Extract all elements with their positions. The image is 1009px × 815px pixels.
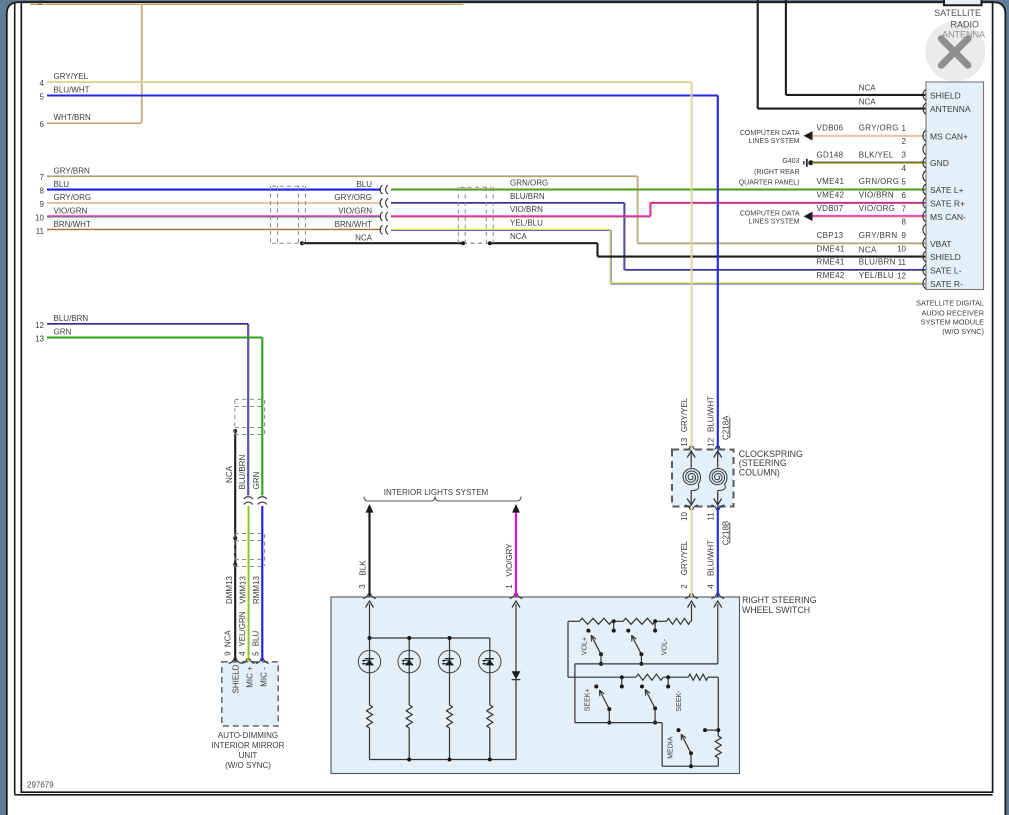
svg-text:BLU/BRN: BLU/BRN: [510, 192, 545, 201]
svg-text:3: 3: [358, 584, 367, 589]
svg-text:VIO/BRN: VIO/BRN: [510, 205, 543, 214]
svg-text:UNIT: UNIT: [239, 751, 258, 760]
svg-text:7: 7: [40, 173, 45, 182]
svg-text:9: 9: [902, 231, 907, 240]
svg-text:BLU/WHT: BLU/WHT: [707, 540, 716, 576]
svg-text:3: 3: [902, 151, 907, 160]
svg-text:2: 2: [902, 137, 907, 146]
svg-text:LINES SYSTEM: LINES SYSTEM: [749, 138, 800, 145]
svg-text:NCA: NCA: [859, 245, 877, 254]
svg-text:GRY/YEL: GRY/YEL: [54, 72, 89, 81]
svg-text:YEL/BLU: YEL/BLU: [859, 271, 894, 280]
svg-text:11: 11: [898, 258, 907, 267]
svg-text:GRY/BRN: GRY/BRN: [54, 166, 91, 175]
svg-text:GRN/ORG: GRN/ORG: [859, 177, 900, 186]
svg-text:MS CAN-: MS CAN-: [930, 212, 966, 222]
svg-text:NCA: NCA: [355, 233, 373, 242]
svg-text:SATE R+: SATE R+: [930, 199, 965, 209]
svg-text:NCA: NCA: [225, 465, 234, 483]
svg-text:8: 8: [40, 187, 45, 196]
svg-text:BLU/BRN: BLU/BRN: [54, 314, 89, 323]
svg-text:SATE L-: SATE L-: [930, 266, 962, 276]
svg-text:6: 6: [902, 191, 907, 200]
svg-text:ANTENNA: ANTENNA: [942, 30, 985, 40]
svg-text:CBP13: CBP13: [817, 231, 844, 240]
svg-text:VME42: VME42: [817, 191, 845, 200]
svg-text:SATE L+: SATE L+: [930, 185, 964, 195]
svg-text:GD148: GD148: [817, 150, 844, 159]
svg-text:VIO/GRN: VIO/GRN: [54, 207, 88, 216]
svg-text:INTERIOR MIRROR: INTERIOR MIRROR: [212, 741, 285, 750]
svg-text:RME42: RME42: [817, 271, 845, 280]
svg-text:13: 13: [35, 335, 44, 344]
svg-text:AUDIO RECEIVER: AUDIO RECEIVER: [922, 308, 984, 317]
svg-text:8: 8: [902, 218, 907, 227]
svg-text:(W/O SYNC): (W/O SYNC): [942, 327, 984, 336]
svg-text:SATELLITE: SATELLITE: [934, 8, 981, 18]
svg-text:BLU/WHT: BLU/WHT: [54, 86, 90, 95]
svg-text:MEDIA: MEDIA: [668, 736, 675, 759]
svg-text:SHIELD: SHIELD: [930, 252, 961, 262]
svg-text:VMM13: VMM13: [238, 576, 247, 604]
svg-text:9: 9: [40, 200, 45, 209]
svg-text:BLU/BRN: BLU/BRN: [238, 454, 247, 489]
svg-text:GRY/ORG: GRY/ORG: [334, 193, 372, 202]
svg-text:SHIELD: SHIELD: [232, 664, 241, 693]
svg-text:WHEEL SWITCH: WHEEL SWITCH: [742, 605, 810, 615]
svg-text:12: 12: [897, 271, 906, 280]
svg-text:VBAT: VBAT: [930, 239, 952, 249]
svg-text:11: 11: [36, 227, 45, 236]
svg-text:RMM13: RMM13: [252, 575, 261, 604]
svg-text:6: 6: [40, 120, 45, 129]
svg-text:SEEK+: SEEK+: [585, 689, 592, 712]
svg-text:5: 5: [251, 651, 260, 656]
svg-text:4: 4: [40, 79, 45, 88]
svg-text:GRY/BRN: GRY/BRN: [859, 231, 898, 240]
svg-text:VOL-: VOL-: [662, 638, 669, 655]
svg-text:SATE R-: SATE R-: [930, 279, 963, 289]
svg-text:COLUMN): COLUMN): [739, 468, 780, 478]
svg-text:C218B: C218B: [721, 521, 730, 545]
svg-text:2: 2: [680, 584, 689, 589]
svg-text:1: 1: [505, 584, 514, 589]
svg-text:4: 4: [707, 584, 716, 589]
svg-text:MIC +: MIC +: [246, 666, 255, 688]
svg-text:VDB06: VDB06: [817, 124, 844, 133]
svg-text:GRY/ORG: GRY/ORG: [859, 124, 899, 133]
svg-text:BLU: BLU: [251, 630, 260, 646]
svg-text:SYSTEM MODULE: SYSTEM MODULE: [921, 317, 984, 326]
svg-text:12: 12: [707, 437, 716, 446]
svg-text:7: 7: [902, 204, 907, 213]
svg-text:BLK: BLK: [359, 560, 368, 576]
svg-text:DME41: DME41: [817, 244, 845, 253]
svg-text:DMM13: DMM13: [225, 575, 234, 604]
svg-text:MIC -: MIC -: [260, 667, 269, 687]
svg-text:G403: G403: [782, 158, 799, 165]
svg-text:297679: 297679: [27, 781, 54, 790]
svg-text:GRN: GRN: [54, 328, 72, 337]
svg-text:YEL/GRN: YEL/GRN: [238, 611, 247, 646]
svg-text:GRY/YEL: GRY/YEL: [680, 397, 689, 432]
svg-text:BRN/WHT: BRN/WHT: [54, 220, 91, 229]
svg-text:VME41: VME41: [817, 177, 845, 186]
svg-text:VOL+: VOL+: [582, 637, 589, 655]
svg-text:MS CAN+: MS CAN+: [930, 131, 968, 141]
svg-text:BLU: BLU: [54, 180, 70, 189]
svg-text:INTERIOR LIGHTS SYSTEM: INTERIOR LIGHTS SYSTEM: [384, 488, 489, 497]
svg-text:C218A: C218A: [721, 415, 730, 440]
svg-text:BLU/WHT: BLU/WHT: [707, 396, 716, 432]
svg-text:GRN: GRN: [252, 471, 261, 489]
svg-text:10: 10: [897, 245, 906, 254]
svg-text:VIO/BRN: VIO/BRN: [859, 191, 894, 200]
svg-text:5: 5: [40, 93, 45, 102]
svg-text:QUARTER PANEL): QUARTER PANEL): [739, 180, 800, 187]
svg-text:11: 11: [707, 512, 716, 521]
svg-text:VIO/GRY: VIO/GRY: [505, 543, 514, 577]
svg-text:VIO/GRN: VIO/GRN: [338, 207, 372, 216]
svg-text:5: 5: [902, 177, 907, 186]
svg-text:4: 4: [238, 651, 247, 656]
svg-text:YEL/BLU: YEL/BLU: [510, 219, 543, 228]
svg-text:SEEK-: SEEK-: [676, 690, 683, 712]
svg-text:SATELLITE DIGITAL: SATELLITE DIGITAL: [916, 299, 984, 308]
svg-text:RADIO: RADIO: [950, 19, 979, 29]
svg-text:GRY/YEL: GRY/YEL: [680, 540, 689, 575]
svg-text:3: 3: [38, 0, 43, 7]
svg-text:VIO/ORG: VIO/ORG: [859, 204, 896, 213]
svg-text:AUTO-DIMMING: AUTO-DIMMING: [218, 731, 278, 740]
svg-text:(W/O SYNC): (W/O SYNC): [225, 761, 271, 770]
svg-text:COMPUTER DATA: COMPUTER DATA: [740, 211, 800, 218]
svg-text:NCA: NCA: [859, 84, 877, 93]
svg-text:12: 12: [35, 321, 44, 330]
svg-text:RME41: RME41: [817, 258, 845, 267]
svg-text:BLU/BRN: BLU/BRN: [859, 258, 896, 267]
svg-text:1: 1: [902, 124, 907, 133]
svg-text:10: 10: [680, 512, 689, 521]
svg-text:SHIELD: SHIELD: [930, 91, 961, 101]
svg-text:9: 9: [224, 651, 233, 656]
svg-text:COMPUTER DATA: COMPUTER DATA: [740, 130, 800, 137]
svg-text:4: 4: [902, 164, 907, 173]
svg-text:NCA: NCA: [224, 630, 233, 648]
svg-text:BLU: BLU: [356, 180, 372, 189]
svg-text:BLK/YEL: BLK/YEL: [859, 150, 894, 159]
svg-text:(RIGHT REAR: (RIGHT REAR: [754, 169, 799, 176]
svg-text:ANTENNA: ANTENNA: [930, 104, 971, 114]
svg-text:GRN/ORG: GRN/ORG: [510, 178, 548, 187]
svg-text:BRN/WHT: BRN/WHT: [335, 220, 372, 229]
svg-text:RIGHT STEERING: RIGHT STEERING: [742, 595, 817, 605]
svg-text:WHT/BRN: WHT/BRN: [54, 113, 92, 122]
svg-text:LINES SYSTEM: LINES SYSTEM: [749, 218, 800, 225]
svg-text:13: 13: [680, 437, 689, 446]
svg-text:GRY/ORG: GRY/ORG: [54, 193, 92, 202]
svg-text:NCA: NCA: [510, 232, 528, 241]
svg-text:VDB07: VDB07: [817, 204, 844, 213]
svg-text:GND: GND: [930, 158, 949, 168]
svg-text:10: 10: [35, 213, 44, 222]
svg-text:NCA: NCA: [859, 97, 877, 106]
